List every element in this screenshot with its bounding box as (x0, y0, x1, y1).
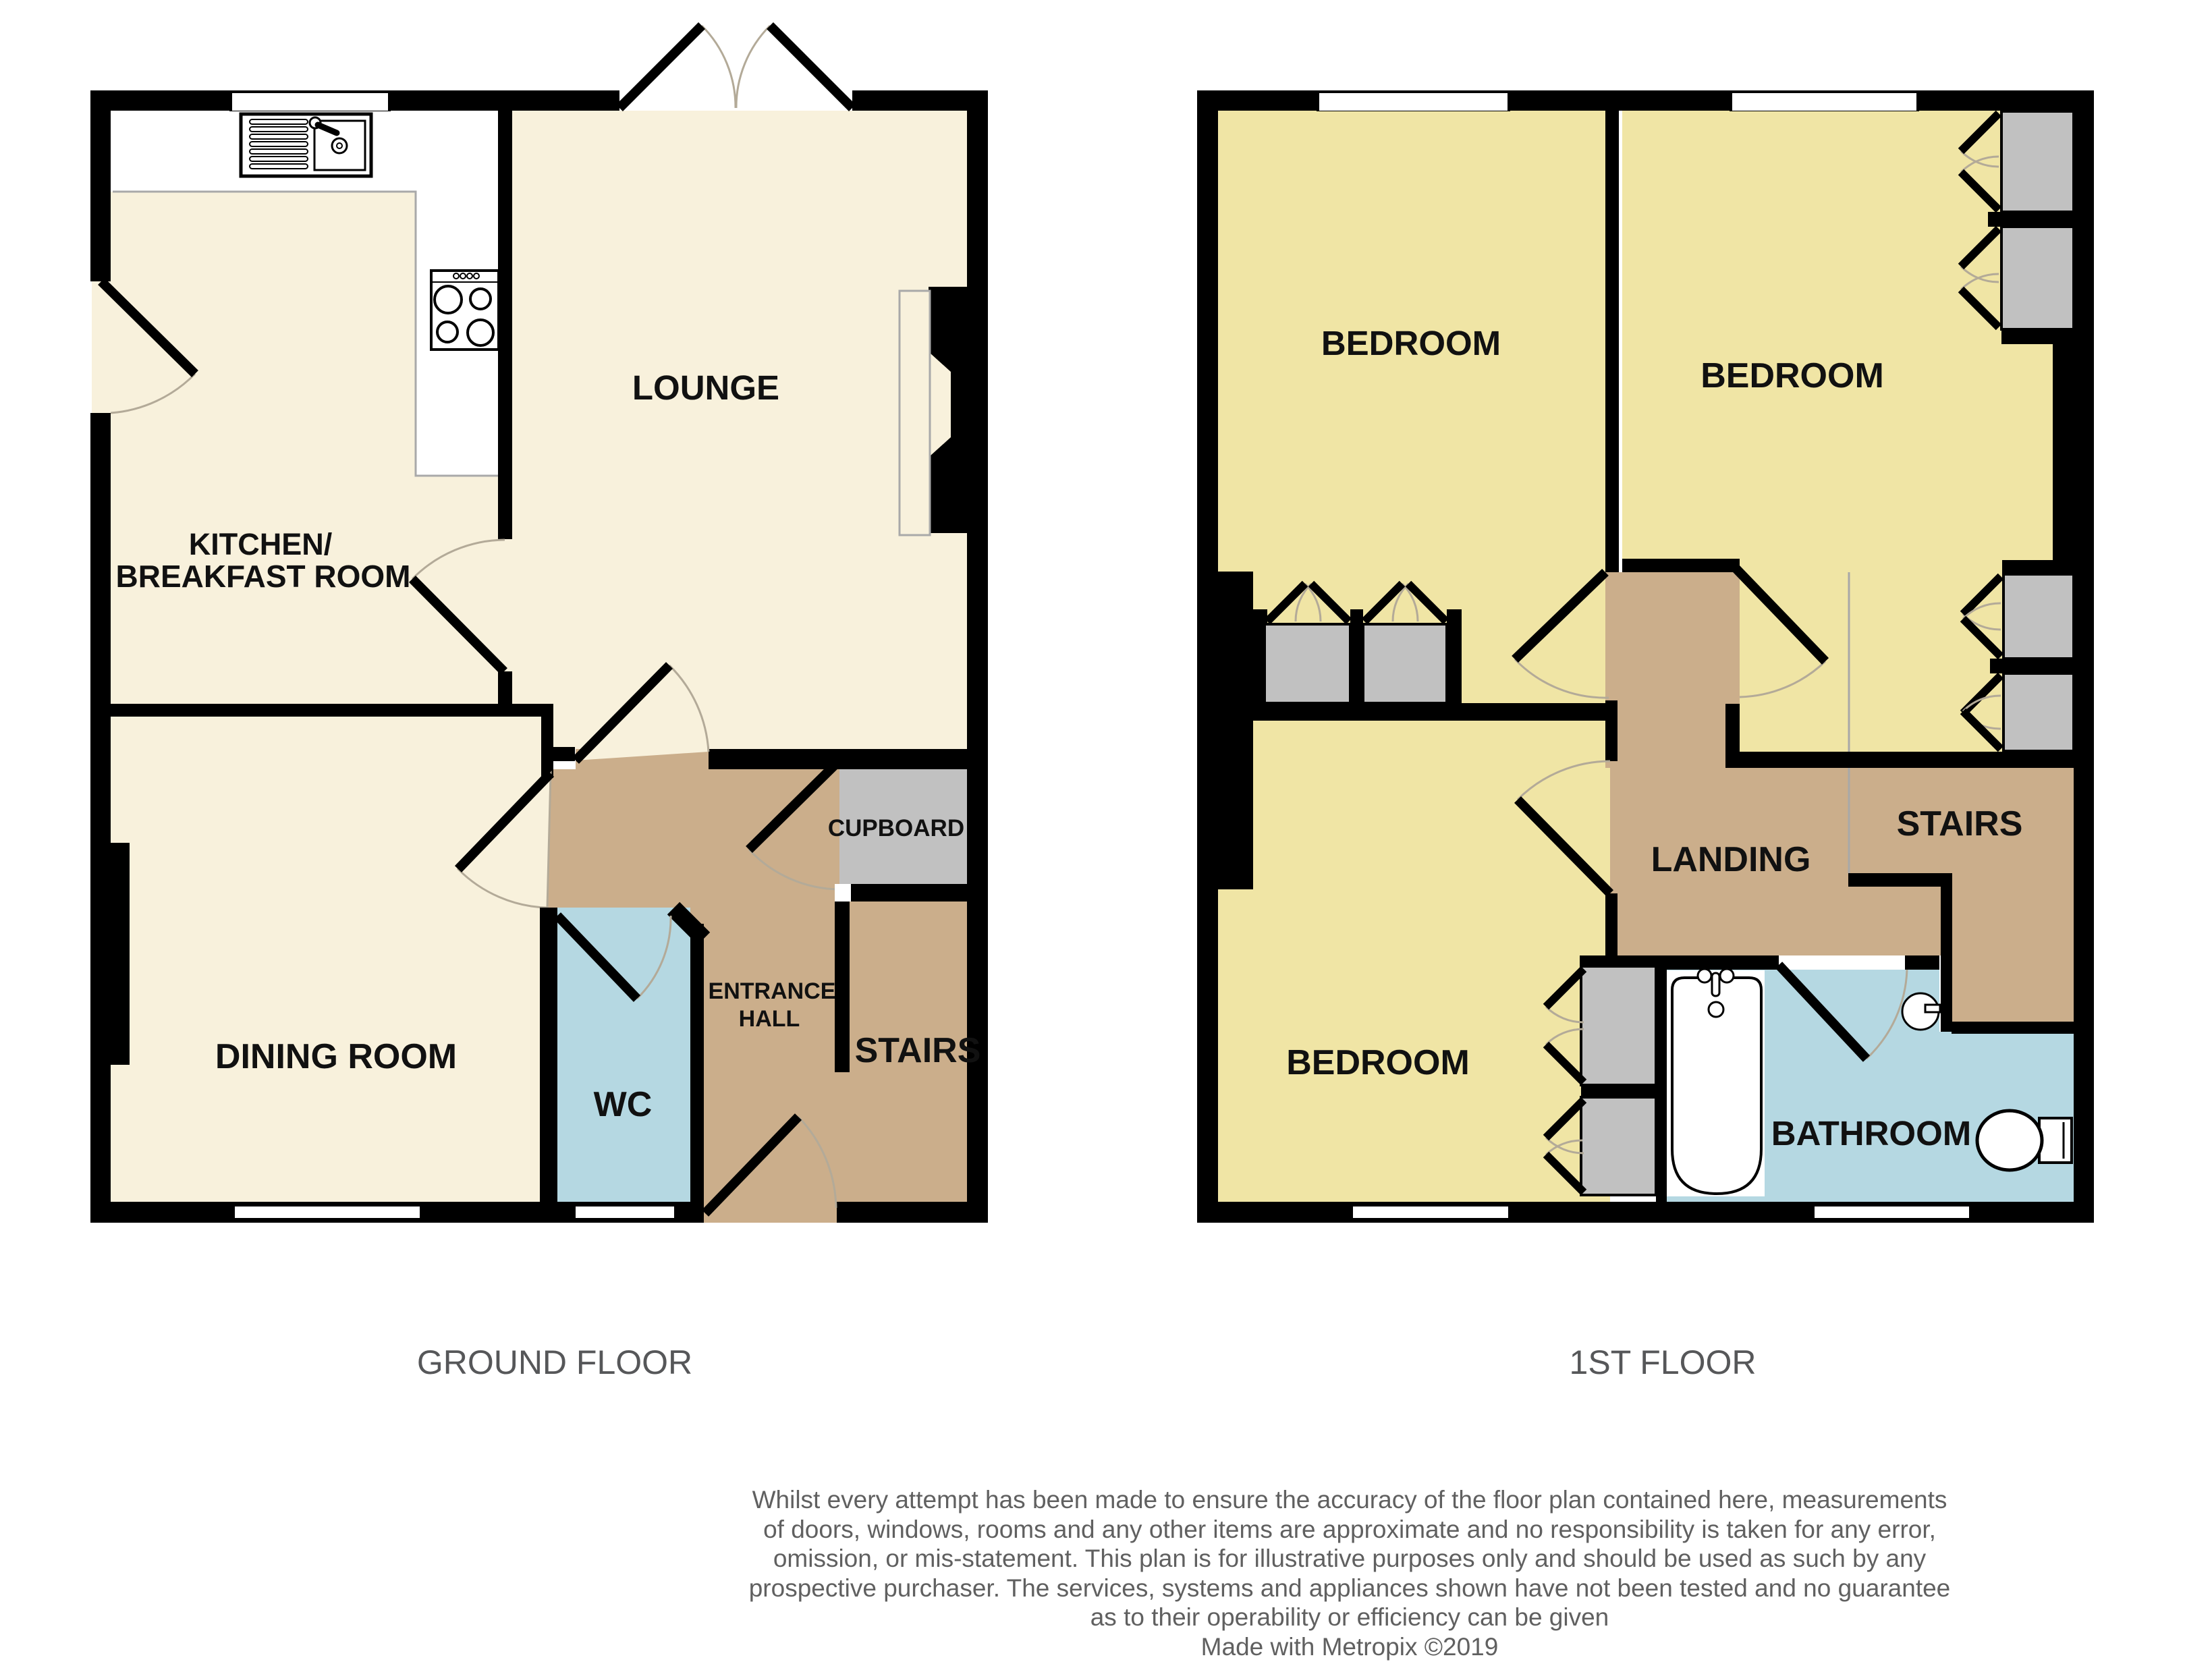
svg-text:WC: WC (594, 1085, 653, 1124)
svg-text:BATHROOM: BATHROOM (1771, 1114, 1972, 1153)
svg-text:BEDROOM: BEDROOM (1321, 324, 1501, 362)
svg-text:KITCHEN/: KITCHEN/ (189, 527, 333, 561)
svg-text:as to their operability or eff: as to their operability or efficiency ca… (1090, 1603, 1609, 1631)
svg-text:1ST FLOOR: 1ST FLOOR (1570, 1343, 1757, 1381)
svg-text:ENTRANCE: ENTRANCE (709, 978, 836, 1004)
svg-text:BREAKFAST ROOM: BREAKFAST ROOM (116, 559, 411, 594)
svg-text:LANDING: LANDING (1651, 840, 1811, 879)
svg-text:BEDROOM: BEDROOM (1286, 1043, 1470, 1082)
svg-text:BEDROOM: BEDROOM (1701, 356, 1884, 395)
svg-text:CUPBOARD: CUPBOARD (828, 815, 964, 841)
svg-text:HALL: HALL (739, 1006, 800, 1032)
svg-text:prospective purchaser. The ser: prospective purchaser. The services, sys… (749, 1574, 1951, 1602)
svg-text:omission, or mis-statement. Th: omission, or mis-statement. This plan is… (773, 1545, 1927, 1572)
svg-text:of doors, windows, rooms and a: of doors, windows, rooms and any other i… (763, 1516, 1936, 1543)
svg-text:LOUNGE: LOUNGE (632, 368, 779, 407)
svg-text:Made with Metropix ©2019: Made with Metropix ©2019 (1201, 1633, 1499, 1661)
svg-text:STAIRS: STAIRS (855, 1031, 981, 1070)
svg-text:STAIRS: STAIRS (1897, 804, 2023, 843)
svg-text:DINING ROOM: DINING ROOM (215, 1037, 457, 1076)
svg-text:Whilst every attempt has been: Whilst every attempt has been made to en… (752, 1486, 1947, 1514)
svg-text:GROUND FLOOR: GROUND FLOOR (417, 1343, 692, 1381)
